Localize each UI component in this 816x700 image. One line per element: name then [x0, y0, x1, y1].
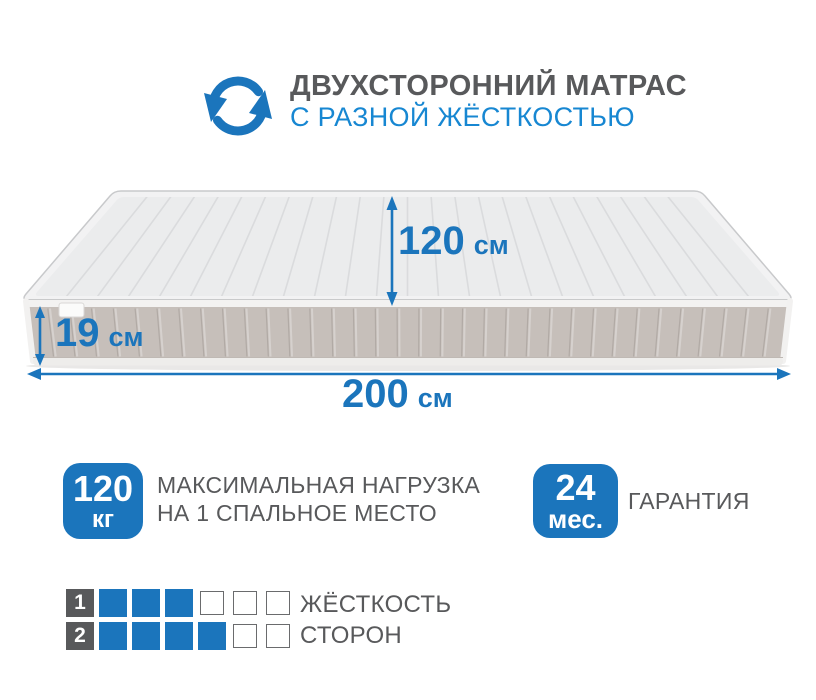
dimension-height-label: 19 см [55, 313, 144, 353]
scale-square-filled [132, 589, 160, 617]
front-top-piping [25, 299, 791, 307]
page-title: ДВУХСТОРОННИЙ МАТРАС [290, 70, 687, 102]
max-load-badge: 120 кг [63, 463, 143, 539]
scale-square-filled [99, 622, 127, 650]
scale-square-empty [233, 591, 257, 615]
max-load-value: 120 [73, 470, 133, 507]
width-unit: см [474, 232, 509, 259]
warranty-label-line1: ГАРАНТИЯ [628, 487, 750, 515]
side2-number: 2 [66, 622, 94, 650]
scale-square-empty [233, 624, 257, 648]
side1-number: 1 [66, 589, 94, 617]
page-subtitle: С РАЗНОЙ ЖЁСТКОСТЬЮ [290, 102, 687, 132]
firmness-scale: 1 2 [66, 589, 292, 650]
scale-square-filled [198, 622, 226, 650]
max-load-label: МАКСИМАЛЬНАЯ НАГРУЗКА НА 1 СПАЛЬНОЕ МЕСТ… [157, 471, 480, 527]
firmness-row-side1: 1 [66, 589, 292, 617]
rotate-arrows-icon [202, 66, 274, 144]
width-value: 120 [398, 221, 465, 261]
mattress-illustration [0, 160, 816, 390]
height-unit: см [109, 324, 144, 351]
scale-square-empty [266, 591, 290, 615]
max-load-label-line2: НА 1 СПАЛЬНОЕ МЕСТО [157, 499, 480, 527]
scale-square-filled [132, 622, 160, 650]
length-unit: см [418, 385, 453, 412]
warranty-value: 24 [555, 469, 595, 506]
scale-square-filled [165, 622, 193, 650]
dimension-width-label: 120 см [398, 221, 509, 261]
warranty-label: ГАРАНТИЯ [628, 487, 750, 515]
warranty-unit: мес. [548, 506, 603, 533]
firmness-caption: ЖЁСТКОСТЬ СТОРОН [300, 589, 451, 651]
height-value: 19 [55, 313, 100, 353]
header-text: ДВУХСТОРОННИЙ МАТРАС С РАЗНОЙ ЖЁСТКОСТЬЮ [290, 70, 687, 132]
scale-square-filled [165, 589, 193, 617]
scale-square-filled [99, 589, 127, 617]
scale-square-empty [200, 591, 224, 615]
warranty-badge: 24 мес. [533, 464, 618, 538]
scale-square-empty [266, 624, 290, 648]
side2-squares [99, 622, 292, 650]
max-load-unit: кг [92, 507, 114, 532]
dimension-length-label: 200 см [342, 374, 453, 414]
length-value: 200 [342, 374, 409, 414]
side1-squares [99, 589, 292, 617]
max-load-label-line1: МАКСИМАЛЬНАЯ НАГРУЗКА [157, 471, 480, 499]
mattress-infographic: ДВУХСТОРОННИЙ МАТРАС С РАЗНОЙ ЖЁСТКОСТЬЮ [0, 0, 816, 700]
firmness-caption-line2: СТОРОН [300, 620, 451, 651]
firmness-row-side2: 2 [66, 622, 292, 650]
firmness-caption-line1: ЖЁСТКОСТЬ [300, 589, 451, 620]
